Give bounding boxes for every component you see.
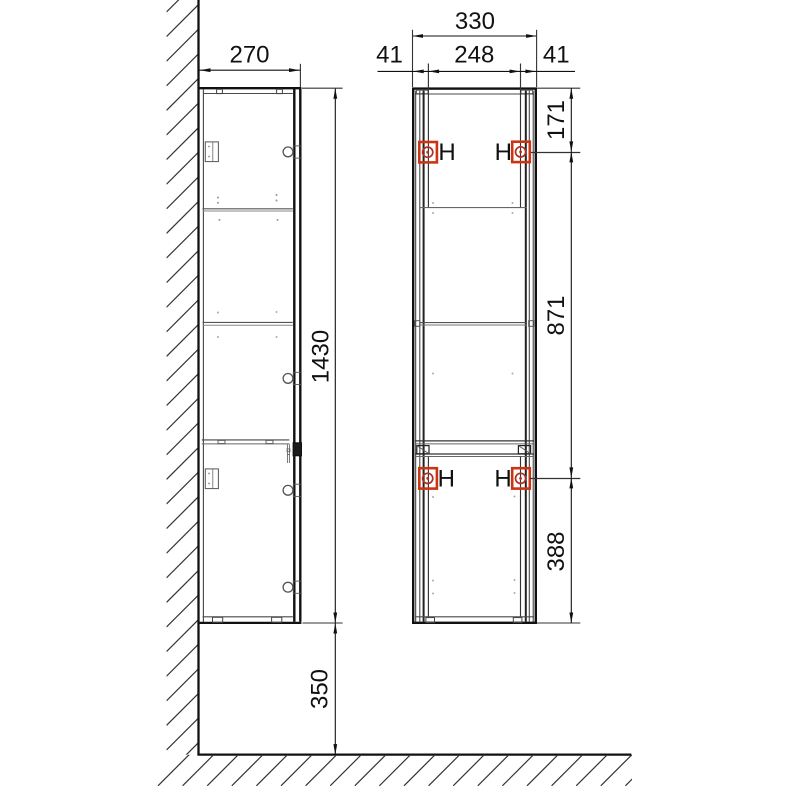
svg-text:H: H [438,466,455,493]
svg-text:H: H [494,466,511,493]
svg-text:1430: 1430 [308,330,335,383]
svg-text:248: 248 [454,42,494,69]
svg-text:350: 350 [306,669,333,709]
svg-text:330: 330 [455,8,495,35]
svg-text:388: 388 [543,531,570,571]
svg-text:H: H [495,139,512,166]
svg-text:871: 871 [543,295,570,335]
svg-text:H: H [438,139,455,166]
svg-text:270: 270 [229,42,269,69]
svg-text:171: 171 [543,100,570,140]
svg-text:41: 41 [376,42,403,69]
svg-text:41: 41 [543,42,570,69]
